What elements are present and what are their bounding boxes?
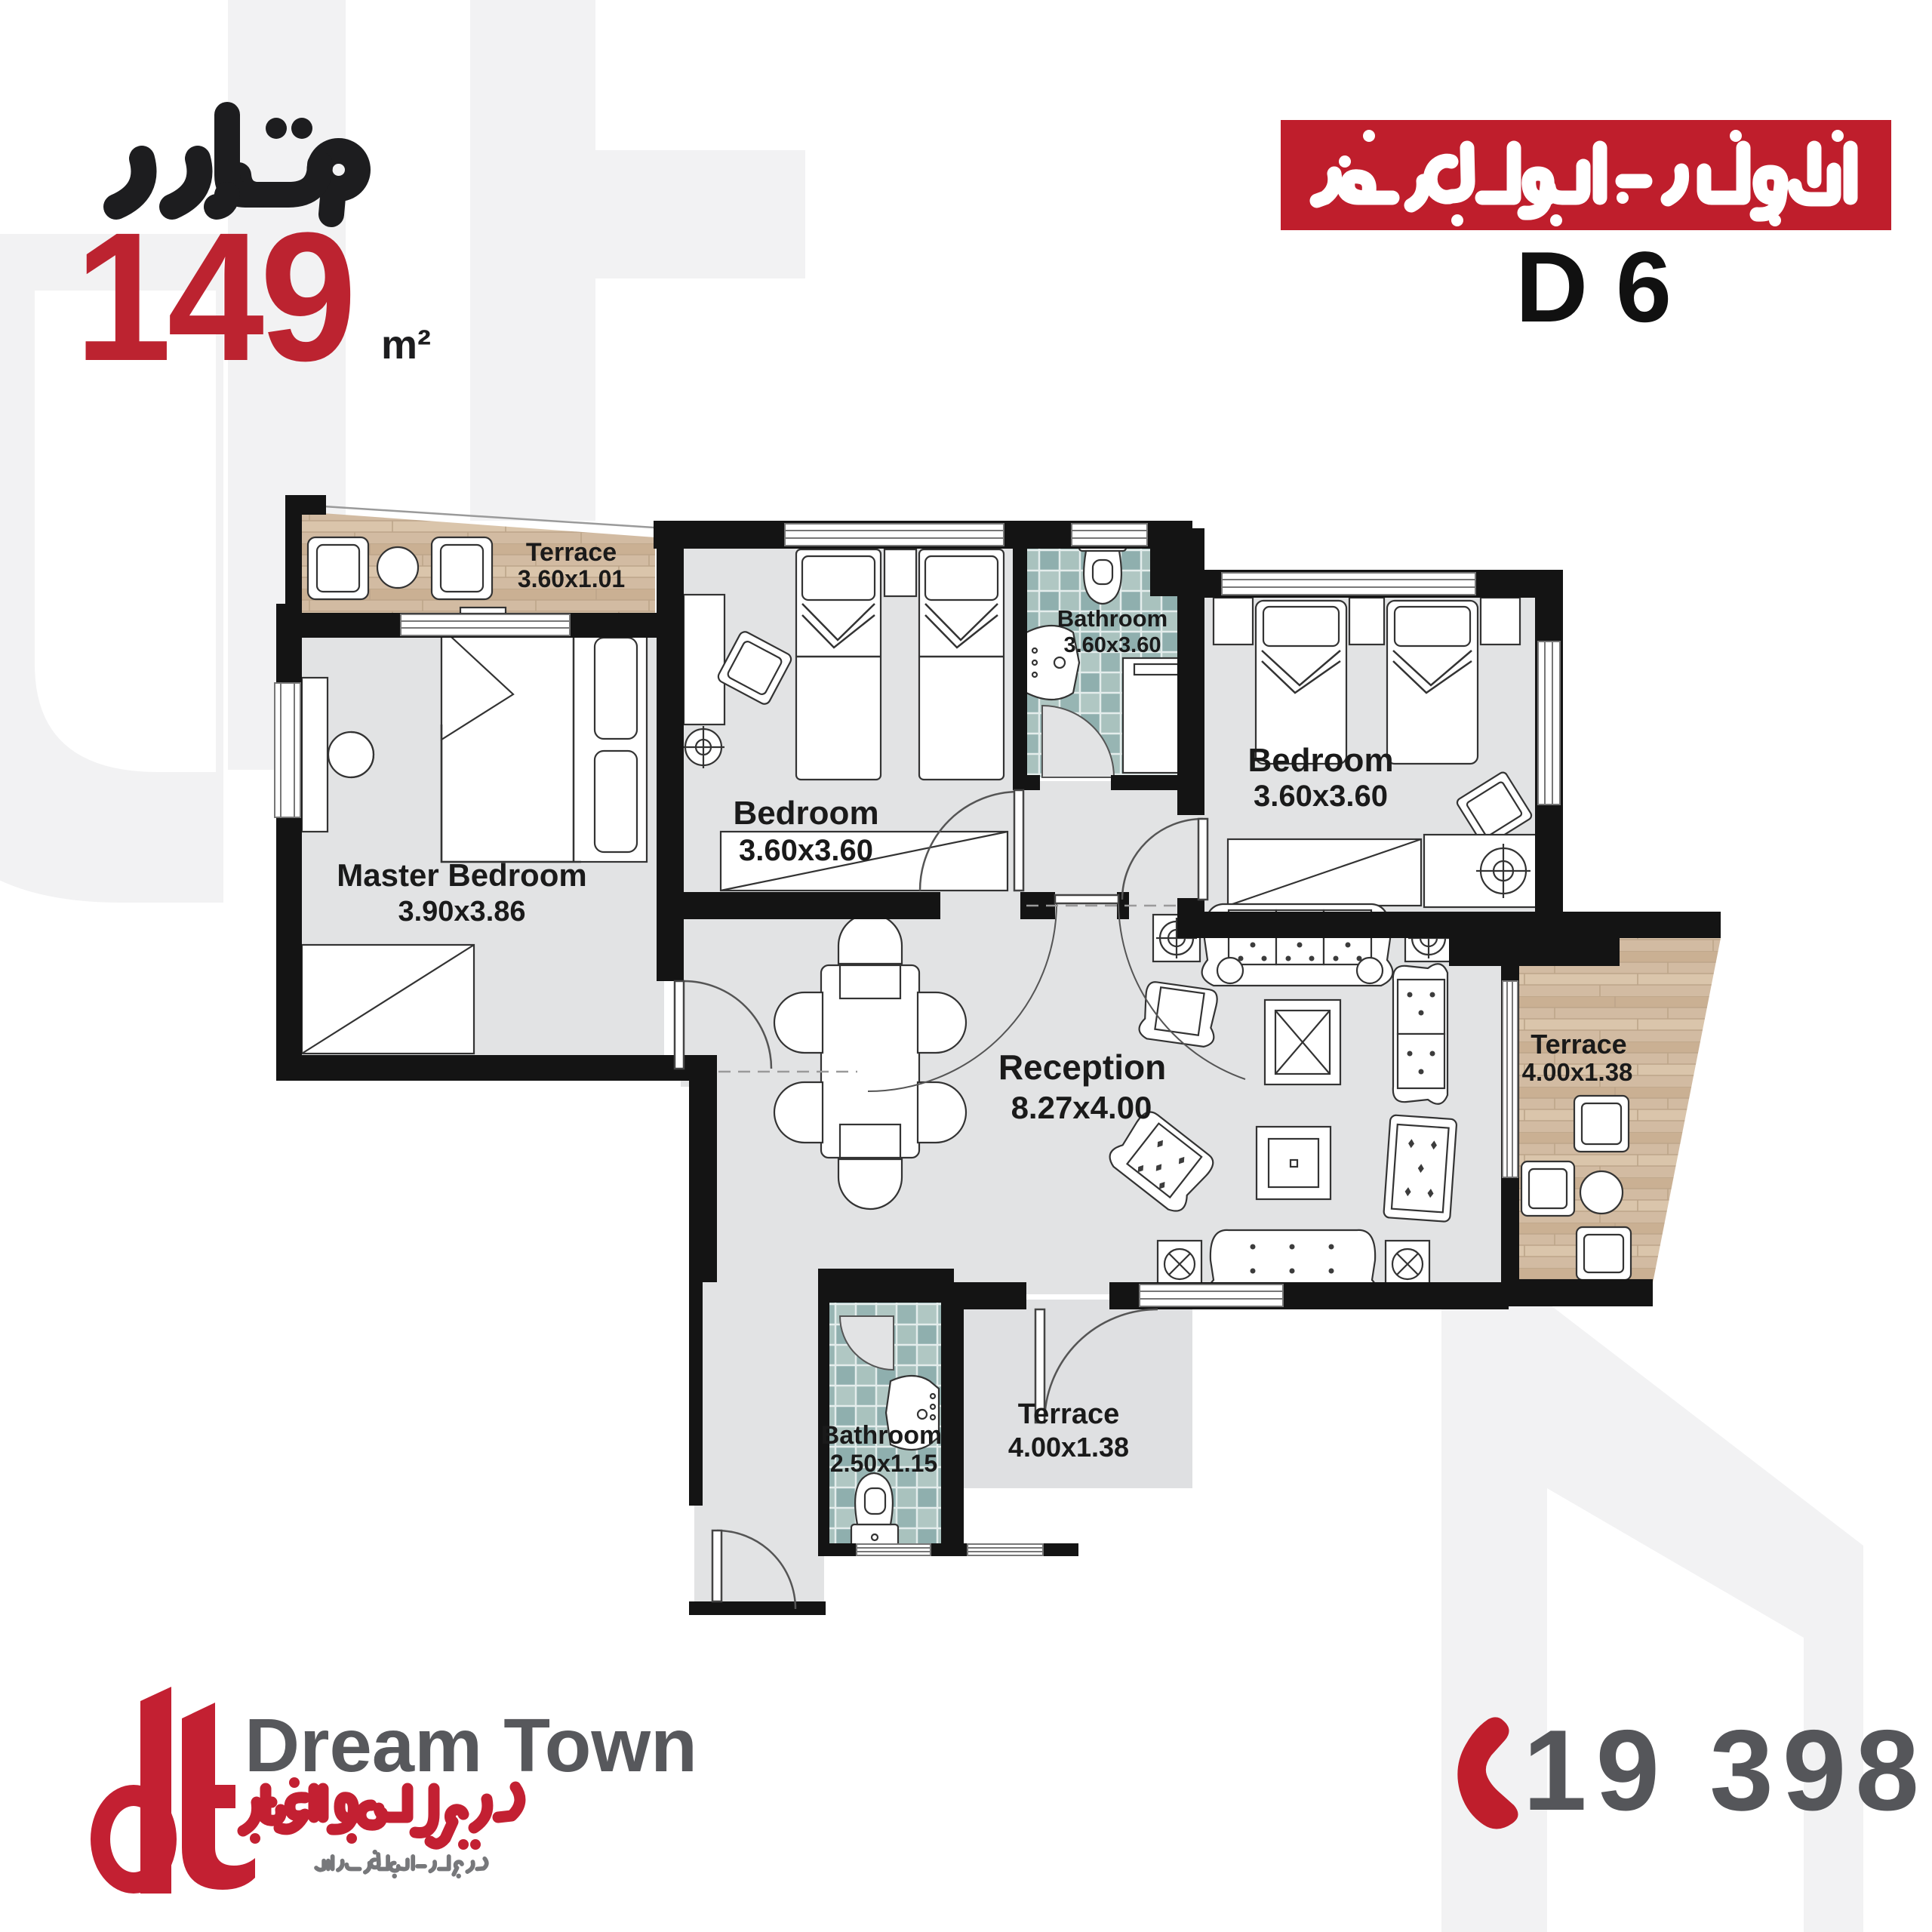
svg-text:Bedroom: Bedroom: [733, 795, 878, 832]
svg-text:2.50x1.15: 2.50x1.15: [830, 1450, 937, 1477]
svg-text:D 6: D 6: [1515, 232, 1672, 343]
svg-text:3.60x3.60: 3.60x3.60: [1254, 780, 1388, 813]
svg-text:Dream Town: Dream Town: [245, 1703, 697, 1788]
svg-text:149: 149: [75, 195, 352, 399]
svg-text:8.27x4.00: 8.27x4.00: [1011, 1090, 1152, 1125]
svg-text:Bathroom: Bathroom: [1057, 605, 1168, 632]
svg-text:Terrace: Terrace: [1018, 1398, 1120, 1430]
svg-text:Bathroom: Bathroom: [821, 1421, 943, 1450]
svg-text:Master Bedroom: Master Bedroom: [337, 857, 586, 893]
svg-text:Reception: Reception: [998, 1048, 1166, 1087]
svg-text:3.90x3.86: 3.90x3.86: [398, 896, 525, 928]
svg-text:Bedroom: Bedroom: [1247, 742, 1393, 779]
svg-text:19 398: 19 398: [1523, 1706, 1928, 1835]
svg-text:3.60x3.60: 3.60x3.60: [1063, 633, 1161, 657]
svg-text:m²: m²: [381, 322, 431, 368]
svg-text:Terrace: Terrace: [526, 538, 617, 567]
svg-text:4.00x1.38: 4.00x1.38: [1008, 1432, 1129, 1463]
svg-text:3.60x3.60: 3.60x3.60: [739, 834, 873, 867]
svg-text:3.60x1.01: 3.60x1.01: [518, 565, 625, 592]
svg-text:4.00x1.38: 4.00x1.38: [1522, 1058, 1633, 1086]
svg-text:Terrace: Terrace: [1531, 1029, 1626, 1060]
